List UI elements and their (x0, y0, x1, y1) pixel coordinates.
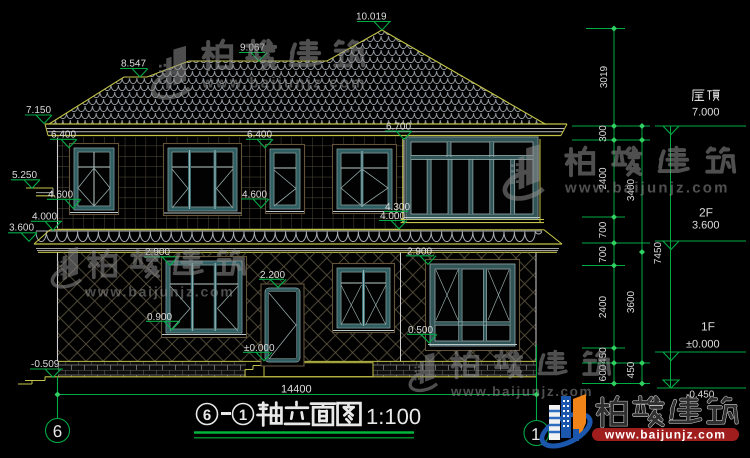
svg-text:1: 1 (239, 407, 247, 424)
svg-text:450: 450 (626, 361, 637, 378)
svg-text:2.900: 2.900 (407, 246, 432, 257)
svg-text:www.baijunjz.com: www.baijunjz.com (604, 428, 726, 442)
svg-text:-0.509: -0.509 (31, 359, 60, 370)
svg-text:10.019: 10.019 (356, 12, 387, 23)
svg-text:6: 6 (53, 422, 62, 441)
svg-text:2.200: 2.200 (260, 270, 285, 281)
svg-text:1:100: 1:100 (366, 404, 421, 429)
svg-text:700: 700 (598, 246, 609, 263)
svg-text:700: 700 (598, 221, 609, 238)
svg-text:14400: 14400 (281, 384, 312, 396)
svg-text:0.900: 0.900 (147, 312, 172, 323)
svg-text:2400: 2400 (598, 295, 609, 318)
svg-text:6.700: 6.700 (386, 121, 411, 132)
svg-text:300: 300 (598, 125, 609, 142)
svg-text:±0.000: ±0.000 (244, 343, 275, 354)
svg-text:www.baijunjz.com: www.baijunjz.com (564, 180, 730, 197)
svg-text:6.400: 6.400 (51, 129, 76, 140)
svg-text:3019: 3019 (599, 65, 610, 88)
svg-text:2F: 2F (699, 206, 713, 220)
svg-text:7450: 7450 (653, 241, 664, 264)
svg-text:0.500: 0.500 (408, 325, 433, 336)
svg-text:1F: 1F (701, 320, 715, 334)
svg-text:6.400: 6.400 (247, 129, 272, 140)
svg-text:4.000: 4.000 (380, 211, 405, 222)
svg-text:8.547: 8.547 (121, 59, 146, 70)
svg-text:±0.000: ±0.000 (686, 339, 720, 351)
svg-text:1: 1 (531, 425, 540, 444)
svg-text:7.150: 7.150 (26, 105, 51, 116)
svg-text:www.baijunjz.com: www.baijunjz.com (201, 75, 367, 92)
svg-text:4.600: 4.600 (242, 189, 267, 200)
svg-text:5.250: 5.250 (12, 170, 37, 181)
svg-text:6: 6 (203, 407, 211, 424)
svg-text:7.000: 7.000 (692, 107, 720, 119)
svg-text:3.600: 3.600 (692, 220, 720, 232)
svg-text:www.baijunjz.com: www.baijunjz.com (84, 284, 235, 300)
svg-text:4.000: 4.000 (32, 211, 57, 222)
svg-text:4.600: 4.600 (48, 189, 73, 200)
svg-text:www.baijunjz.com: www.baijunjz.com (450, 384, 593, 399)
svg-text:3.600: 3.600 (9, 222, 34, 233)
svg-text:3600: 3600 (626, 290, 637, 313)
